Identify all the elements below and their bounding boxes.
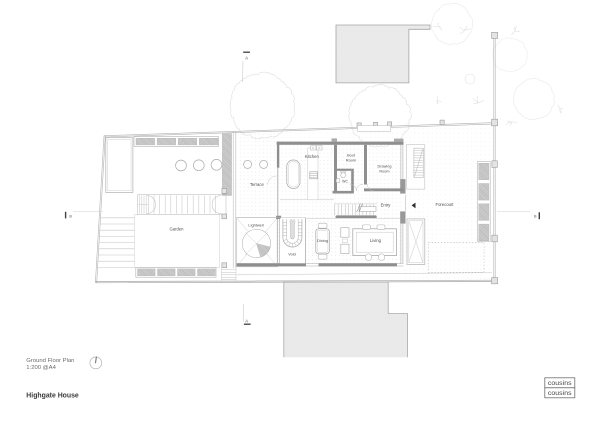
svg-text:Ground Floor Plan: Ground Floor Plan — [26, 358, 74, 364]
svg-text:A: A — [245, 55, 248, 60]
svg-text:B: B — [534, 215, 537, 219]
svg-text:1:200 @A4: 1:200 @A4 — [26, 365, 56, 371]
svg-text:Highgate House: Highgate House — [26, 393, 79, 400]
svg-text:Living: Living — [370, 238, 382, 243]
svg-text:Entry: Entry — [381, 203, 392, 208]
svg-text:Lightwell: Lightwell — [248, 222, 263, 227]
svg-text:Room: Room — [379, 169, 389, 173]
svg-text:A: A — [245, 318, 248, 323]
svg-text:cousins: cousins — [548, 380, 572, 387]
svg-text:WC: WC — [342, 179, 348, 183]
svg-text:Room: Room — [346, 158, 356, 162]
svg-text:Boot: Boot — [347, 154, 356, 158]
svg-text:Void: Void — [288, 252, 295, 256]
svg-text:Terrace: Terrace — [250, 182, 265, 187]
svg-text:Kitchen: Kitchen — [305, 154, 320, 159]
svg-text:cousins: cousins — [548, 390, 572, 397]
svg-text:Drawing: Drawing — [378, 165, 392, 169]
svg-text:Dining: Dining — [317, 239, 328, 243]
svg-text:Forecourt: Forecourt — [436, 202, 455, 207]
svg-text:Garden: Garden — [170, 226, 185, 231]
